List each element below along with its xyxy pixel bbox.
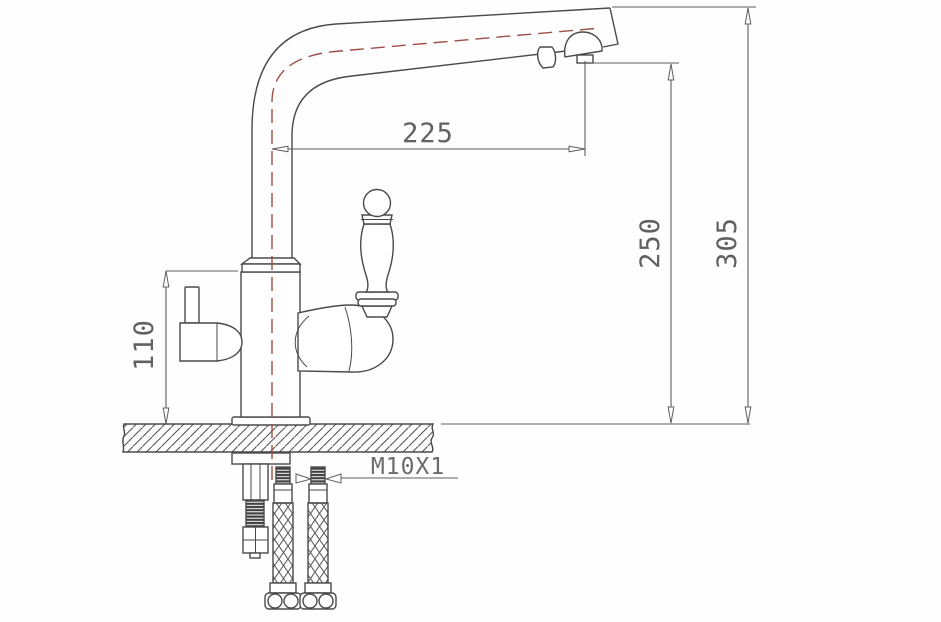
faucet-technical-drawing: 225 250 305 110 M10X1 <box>0 0 941 622</box>
thread-callout: M10X1 <box>341 454 458 480</box>
dimension-aerator-height: 250 <box>590 63 679 423</box>
thread-wing-right <box>326 474 341 483</box>
mounting-flange <box>232 417 310 425</box>
drawing-page: 225 250 305 110 M10X1 <box>0 0 941 622</box>
centerline <box>272 28 601 480</box>
flex-hose-right <box>296 467 341 609</box>
dimension-spout-reach: 225 <box>272 61 585 156</box>
diverter-knob <box>538 47 556 68</box>
dim-label-305: 305 <box>712 217 743 269</box>
dim-label-250: 250 <box>635 217 666 269</box>
stud-thread <box>246 500 264 527</box>
dim-label-110: 110 <box>129 319 160 371</box>
flex-hose-left <box>265 467 301 609</box>
thread-callout-label: M10X1 <box>371 454 445 480</box>
dim-label-225: 225 <box>402 118 454 149</box>
ceramic-lever-handle <box>356 190 398 318</box>
handle-ball <box>364 190 391 217</box>
dimension-overall-height: 305 <box>612 7 756 423</box>
filter-valve <box>180 287 242 361</box>
mounting-washer <box>232 453 290 464</box>
countertop <box>123 424 750 452</box>
body-collar <box>242 258 300 272</box>
faucet-body-column <box>241 272 300 417</box>
thread-wing-left <box>296 474 311 483</box>
filter-valve-stick <box>185 287 199 323</box>
spout-tip-cut <box>603 8 618 47</box>
mounting-stud <box>243 464 268 558</box>
aerator <box>565 32 602 63</box>
